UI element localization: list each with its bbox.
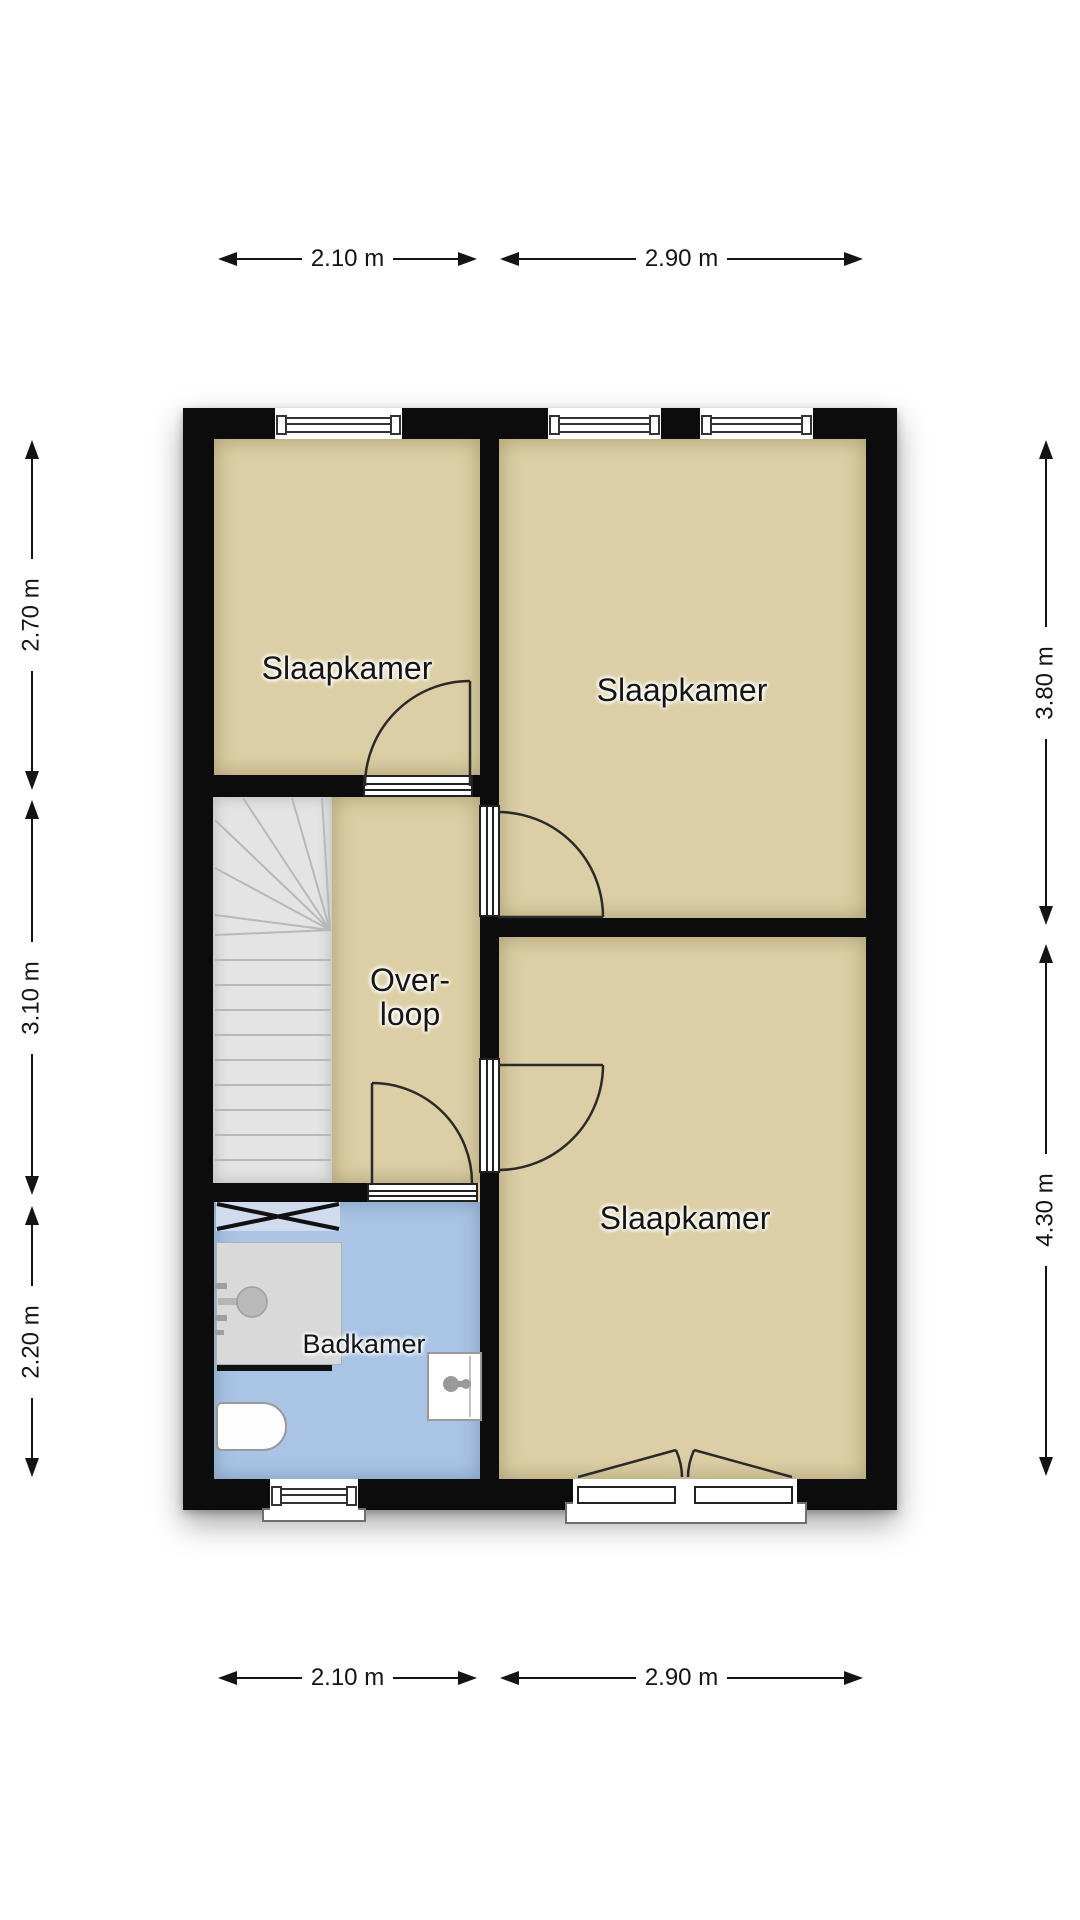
room-label-landing-line2: loop <box>370 997 450 1031</box>
wall-vertical-center-middle <box>480 917 499 1058</box>
dimension-label: 2.70 m <box>0 559 69 671</box>
window-top-left <box>275 408 402 439</box>
door-threshold-bedroom-tl <box>363 775 473 797</box>
arrowhead-icon <box>1039 944 1053 963</box>
french-door-opening <box>573 1479 797 1510</box>
window-frame-post <box>649 415 660 435</box>
dimension-label: 2.10 m <box>302 245 393 273</box>
dimension-bottom-left: 2.10 m <box>218 1663 477 1693</box>
arrowhead-icon <box>458 252 477 266</box>
arrowhead-icon <box>500 252 519 266</box>
wall-bedroom-tl-bottom <box>214 775 363 797</box>
door-threshold-bedroom-br <box>479 1058 500 1173</box>
dimension-right-1: 3.80 m <box>1031 440 1061 925</box>
room-label-bedroom-top-left: Slaapkamer <box>262 651 433 685</box>
dimension-label: 4.30 m <box>1009 1154 1080 1266</box>
toilet-icon <box>216 1402 287 1451</box>
dimension-label: 3.10 m <box>0 942 69 1054</box>
dimension-label: 2.10 m <box>302 1664 393 1692</box>
window-glass <box>710 417 803 433</box>
staircase <box>213 797 332 1183</box>
dimension-top-right: 2.90 m <box>500 244 863 274</box>
arrowhead-icon <box>458 1671 477 1685</box>
window-glass <box>285 417 392 433</box>
dimension-bottom-right: 2.90 m <box>500 1663 863 1693</box>
wall-vertical-center-upper <box>480 439 499 805</box>
arrowhead-icon <box>844 1671 863 1685</box>
sink-edge <box>469 1356 471 1417</box>
window-bathroom <box>270 1479 358 1510</box>
sink-icon <box>427 1352 482 1421</box>
window-glass <box>558 417 651 433</box>
window-glass <box>280 1488 348 1504</box>
arrowhead-icon <box>25 800 39 819</box>
arrowhead-icon <box>25 440 39 459</box>
dimension-left-2: 3.10 m <box>17 800 47 1195</box>
window-frame-post <box>801 415 812 435</box>
window-frame-post <box>390 415 401 435</box>
french-door-panel-left <box>577 1486 676 1504</box>
arrowhead-icon <box>1039 906 1053 925</box>
room-label-bedroom-top-right: Slaapkamer <box>597 673 768 707</box>
french-door-panel-right <box>694 1486 793 1504</box>
arrowhead-icon <box>218 1671 237 1685</box>
arrowhead-icon <box>844 252 863 266</box>
room-bedroom-top-left <box>214 439 480 775</box>
dimension-left-3: 2.20 m <box>17 1206 47 1477</box>
dimension-label: 2.90 m <box>636 245 727 273</box>
arrowhead-icon <box>500 1671 519 1685</box>
room-label-bathroom: Badkamer <box>302 1327 425 1361</box>
shaft-crossed-box-icon <box>216 1202 340 1231</box>
arrowhead-icon <box>218 252 237 266</box>
dimension-right-2: 4.30 m <box>1031 944 1061 1476</box>
window-frame-post <box>346 1486 357 1506</box>
arrowhead-icon <box>25 1458 39 1477</box>
arrowhead-icon <box>25 771 39 790</box>
window-sill <box>262 1508 366 1522</box>
wall-bathroom-top <box>214 1183 367 1202</box>
dimension-top-left: 2.10 m <box>218 244 477 274</box>
dimension-left-1: 2.70 m <box>17 440 47 790</box>
arrowhead-icon <box>25 1206 39 1225</box>
room-label-bedroom-bottom-right: Slaapkamer <box>600 1201 771 1235</box>
dimension-label: 2.20 m <box>0 1286 69 1398</box>
wall-between-right-bedrooms <box>499 918 866 937</box>
arrowhead-icon <box>1039 1457 1053 1476</box>
window-top-middle <box>548 408 661 439</box>
door-threshold-bathroom <box>367 1183 478 1202</box>
room-label-landing: Over- loop <box>370 963 450 1031</box>
window-top-right <box>700 408 813 439</box>
door-threshold-bedroom-tr <box>479 805 500 917</box>
wall-vertical-center-lower <box>480 1173 499 1479</box>
arrowhead-icon <box>1039 440 1053 459</box>
dimension-label: 2.90 m <box>636 1664 727 1692</box>
room-label-landing-line1: Over- <box>370 963 450 997</box>
arrowhead-icon <box>25 1176 39 1195</box>
wall-bedroom-tl-bottom-stub <box>473 775 499 797</box>
dimension-label: 3.80 m <box>1009 627 1080 739</box>
